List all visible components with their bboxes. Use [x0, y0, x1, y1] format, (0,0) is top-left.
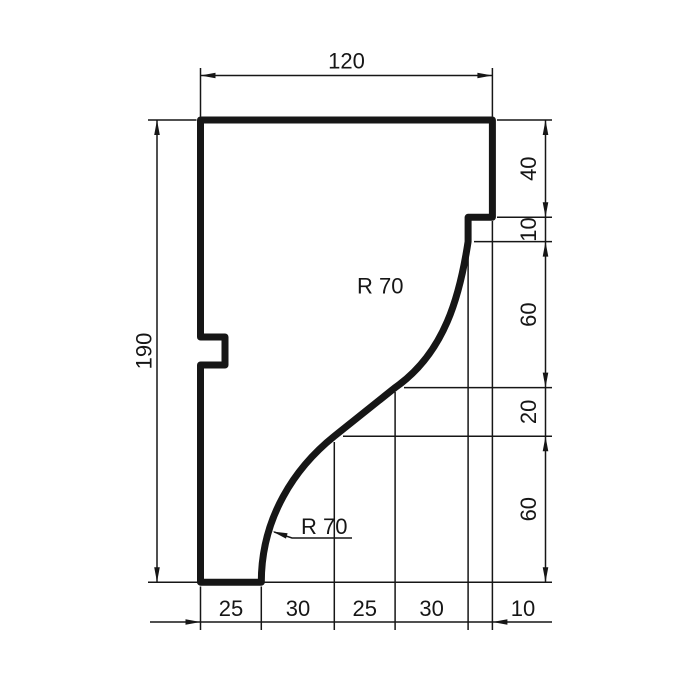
dim-label-right-5: 60	[516, 497, 541, 521]
dim-label-right-3: 60	[516, 302, 541, 326]
dim-label-top-width: 120	[328, 49, 365, 74]
arrow-top-right	[477, 73, 492, 79]
arrow-bottom-left-out	[186, 619, 201, 625]
dim-label-bottom-5: 10	[511, 596, 535, 621]
dim-label-bottom-3: 25	[352, 596, 376, 621]
arrow-right-0-up	[543, 120, 549, 135]
arrow-bottom-right-out	[492, 619, 507, 625]
drawing-canvas: 120 190 40 10 60 20 60 25 30 25 30 10 R …	[0, 0, 686, 686]
arrow-right-5-down	[543, 567, 549, 582]
dim-label-right-4: 20	[516, 400, 541, 424]
arrow-right-1-down	[543, 202, 549, 217]
radius-label-lower: R 70	[301, 514, 347, 539]
dim-label-right-2: 10	[516, 217, 541, 241]
profile-outline	[201, 120, 493, 582]
dim-label-bottom-1: 25	[219, 596, 243, 621]
arrow-top-left	[201, 73, 216, 79]
radius-label-upper: R 70	[357, 274, 403, 299]
arrow-right-2-up	[543, 242, 549, 257]
arrow-left-down	[154, 567, 160, 582]
dim-label-left-height: 190	[132, 333, 157, 370]
arrow-left-up	[154, 120, 160, 135]
dim-label-bottom-2: 30	[286, 596, 310, 621]
arrow-radius-lower	[273, 532, 288, 539]
dim-label-bottom-4: 30	[419, 596, 443, 621]
dim-label-right-1: 40	[516, 156, 541, 180]
technical-profile-drawing: 120 190 40 10 60 20 60 25 30 25 30 10 R …	[0, 0, 686, 686]
arrow-right-3-down	[543, 373, 549, 388]
arrow-right-4-up	[543, 436, 549, 451]
